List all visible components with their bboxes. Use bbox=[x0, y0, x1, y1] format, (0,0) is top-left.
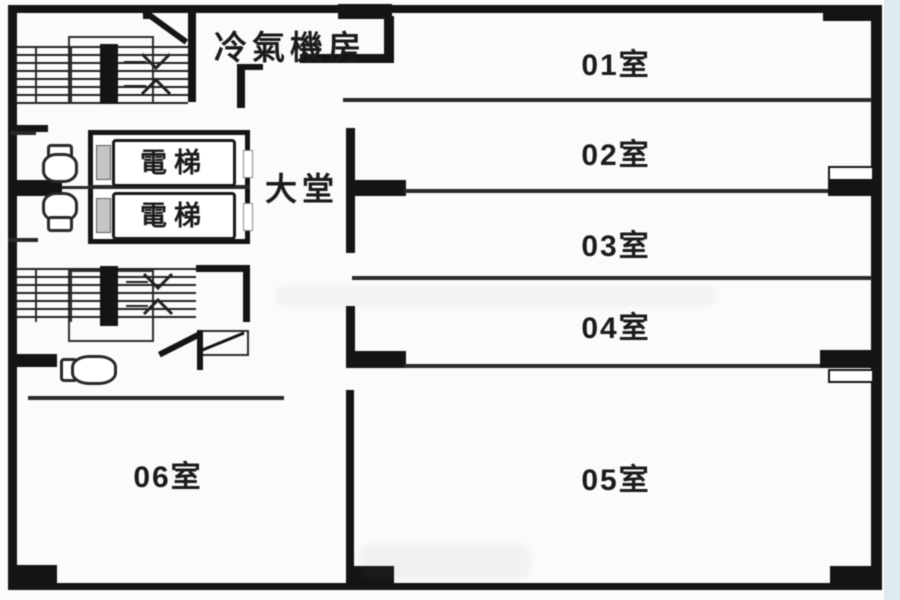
divider-room-03-04 bbox=[352, 276, 872, 280]
wall-tab-04-05 bbox=[346, 351, 406, 368]
room-01-label: 01室 bbox=[558, 40, 674, 84]
corner-block-bottom-left bbox=[8, 565, 57, 590]
elevator-1-counterweight bbox=[96, 145, 111, 180]
outer-wall-top bbox=[8, 5, 875, 13]
elevator-2-label: 電梯 bbox=[140, 203, 208, 230]
elevator-2-car: 電梯 bbox=[112, 192, 236, 240]
room-06-right-wall bbox=[346, 390, 354, 590]
window-detail-02-03-upper bbox=[828, 166, 874, 181]
outer-wall-right bbox=[871, 5, 882, 590]
divider-room-04-05 bbox=[404, 364, 822, 368]
stairs-door-swing bbox=[158, 331, 202, 357]
elevator-1-car: 電梯 bbox=[112, 139, 236, 187]
room-03-label: 03室 bbox=[558, 221, 674, 265]
room-04-label: 04室 bbox=[558, 303, 674, 347]
stairs-top-stringer-1 bbox=[35, 46, 37, 104]
stairs-door-jamb-wall bbox=[197, 330, 203, 370]
stairs-bottom-direction-arrows bbox=[124, 272, 186, 318]
washroom-wall-bottom-left bbox=[8, 354, 57, 367]
stairs-bottom-enclosure-right-wall bbox=[243, 265, 250, 322]
toilet-room-bottom-wall bbox=[8, 238, 38, 242]
stairs-bottom-stringer-1 bbox=[35, 268, 37, 322]
machine-room-left-wall bbox=[188, 10, 196, 102]
stairs-door-leaf-diagonal bbox=[197, 330, 247, 354]
floor-plan-image: 冷氣機房 電梯 電梯 bbox=[0, 0, 900, 600]
corner-block-bottom-right bbox=[830, 566, 877, 590]
divider-room-02-03 bbox=[404, 189, 828, 193]
window-detail-02-03-lower bbox=[828, 180, 872, 196]
room-02-label: 02室 bbox=[558, 130, 674, 174]
elevator-2-counterweight bbox=[96, 198, 111, 233]
machine-room-label: 冷氣機房 bbox=[198, 21, 382, 69]
corner-block-top-right bbox=[823, 5, 875, 21]
divider-room-01-02 bbox=[343, 98, 872, 102]
room-06-label: 06室 bbox=[110, 452, 226, 496]
stairs-bottom-stringer-2 bbox=[70, 268, 72, 322]
stairs-top-direction-arrows bbox=[122, 50, 184, 100]
stairs-bottom-handrail-bar bbox=[100, 266, 118, 326]
room-05-label: 05室 bbox=[558, 455, 674, 499]
stairs-bottom-enclosure-top-wall bbox=[196, 265, 250, 272]
room-06-top-wall bbox=[28, 396, 284, 400]
stairs-top-stringer-2 bbox=[70, 46, 72, 104]
toilet-partition-line bbox=[62, 186, 90, 189]
floor-plan: 冷氣機房 電梯 電梯 bbox=[0, 0, 900, 600]
stairs-top-handrail-bar bbox=[100, 44, 118, 104]
toilet-fixture-2 bbox=[38, 190, 80, 228]
outer-wall-bottom bbox=[8, 583, 878, 590]
elevator-1-label: 電梯 bbox=[140, 150, 208, 177]
toilet-room-top-wall bbox=[10, 131, 36, 135]
scan-artifact-watermark-2 bbox=[360, 545, 530, 579]
scan-artifact-watermark bbox=[275, 286, 715, 306]
toilet-fixture-3 bbox=[60, 350, 118, 384]
lobby-label: 大堂 bbox=[252, 164, 352, 210]
toilet-fixture-1 bbox=[38, 144, 80, 182]
lobby-top-wall-vertical bbox=[237, 64, 245, 108]
window-detail-04-05-upper bbox=[820, 350, 875, 368]
wall-tab-02-03 bbox=[346, 180, 406, 196]
window-detail-04-05-lower bbox=[828, 369, 874, 383]
